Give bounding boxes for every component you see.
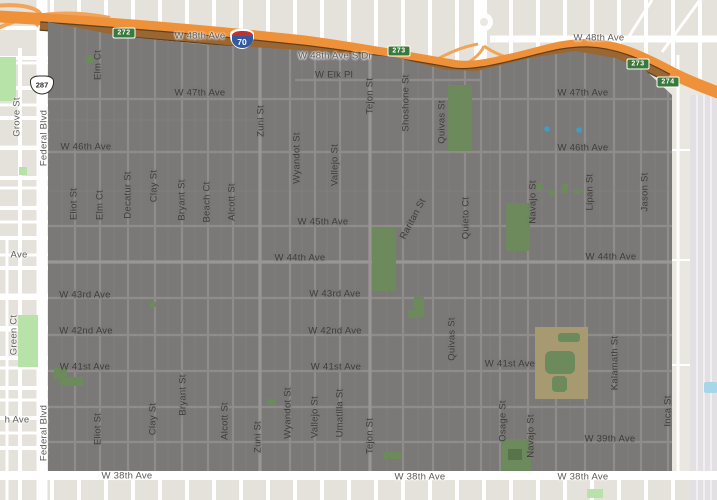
water-patch (704, 382, 717, 393)
field-tan (535, 327, 588, 399)
map-base-layer (0, 0, 717, 500)
map-canvas[interactable]: W 48th AveW 48th AveW 48th Ave S DrW Elk… (0, 0, 717, 500)
boundary-overlay (48, 22, 672, 471)
w38th-ave-road (0, 471, 717, 480)
pool-dot (576, 127, 582, 133)
pool-dot (544, 126, 550, 132)
rail-corridor (690, 95, 717, 500)
